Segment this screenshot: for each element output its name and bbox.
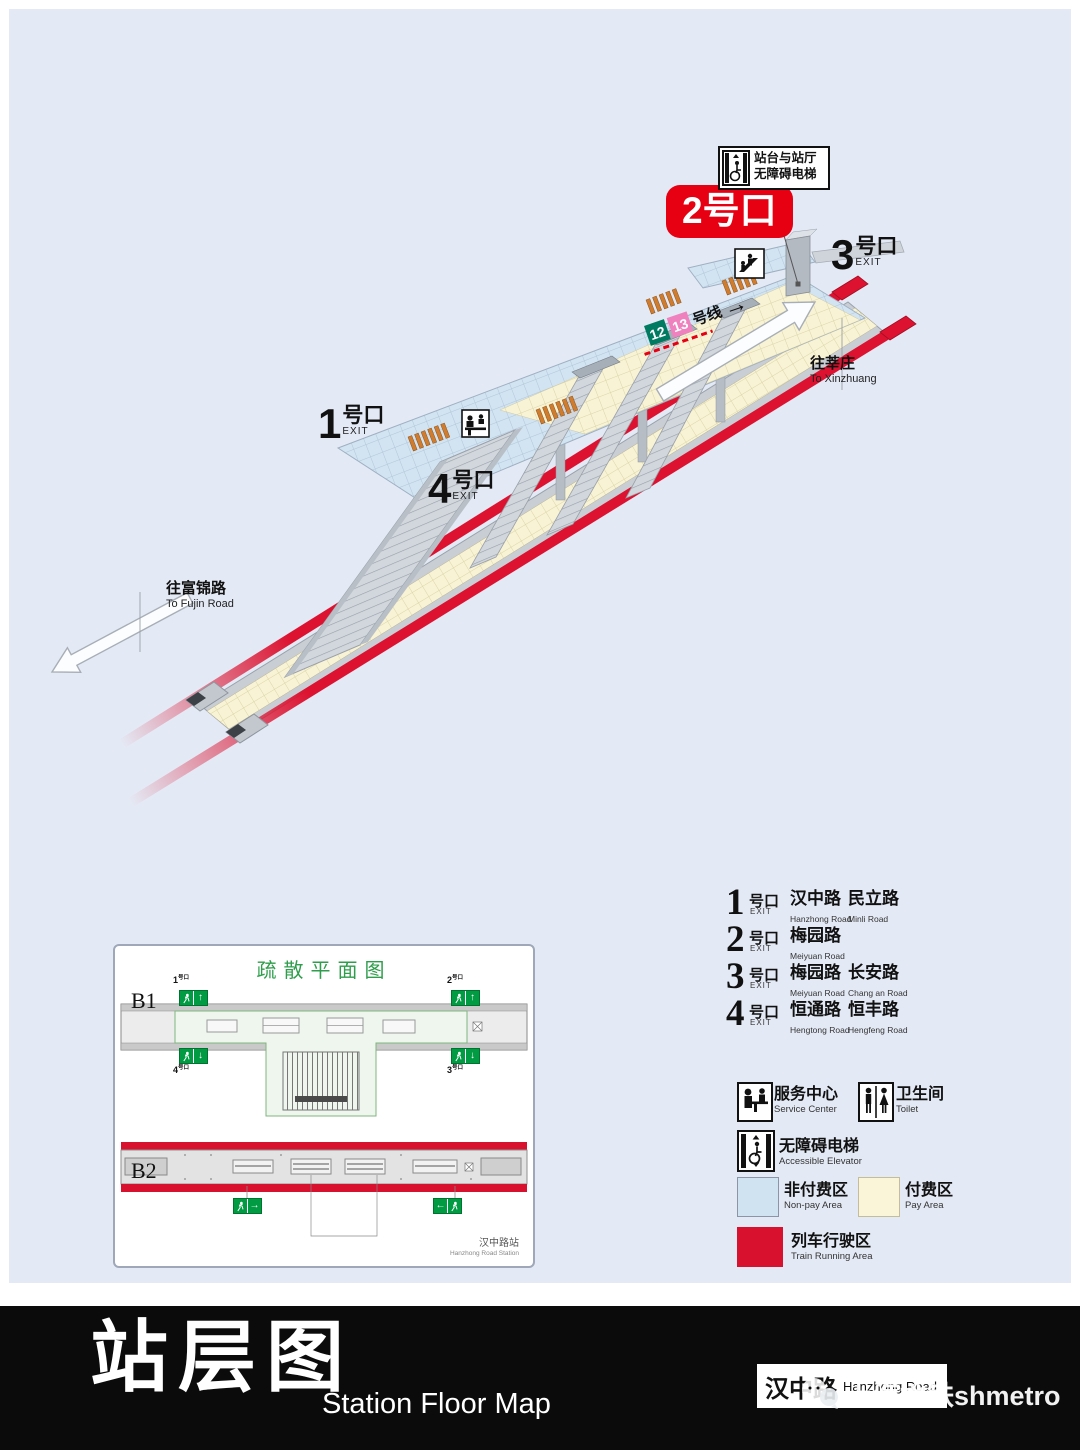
down-arrow-icon: ↓ (465, 1049, 479, 1063)
down-arrow-icon: ↓ (193, 1049, 207, 1063)
line-transfer-sign: 12 13 号线 → (644, 326, 749, 356)
shmetro-watermark: 上海地铁shmetro (798, 1374, 1061, 1413)
up-arrow-icon: ↑ (193, 991, 207, 1005)
to-xinzhuang-label: 往莘庄 To Xinzhuang (810, 355, 877, 385)
evac-exit-4-sign: ↓ (179, 1048, 208, 1064)
map-canvas: 1 号口 EXIT 4 号口 EXIT 3 号口 EXIT 2号口 (0, 0, 1080, 1292)
up-arrow-icon: ↑ (465, 991, 479, 1005)
map-exit-2-badge: 2号口 (666, 185, 793, 238)
exit-list: 1 号口 EXIT 汉中路Hanzhong Road 民立路Minli Road… (726, 890, 986, 1050)
evac-exit-4-label: 4号口 (173, 1066, 189, 1075)
footer-title-en: Station Floor Map (322, 1388, 551, 1421)
map-exit-4-label: 4 号口 EXIT (428, 470, 494, 508)
evac-exit-1-sign: ↑ (179, 990, 208, 1006)
evac-b2-exit-sign-right: ← (433, 1198, 462, 1214)
evacuation-plan-box: 疏散平面图 (113, 944, 535, 1268)
accessible-elevator-legend-icon (737, 1130, 775, 1172)
accessible-elevator-icon (722, 150, 750, 186)
exit-list-row-4: 4 号口 EXIT 恒通路Hengtong Road 恒丰路Hengfeng R… (726, 1001, 1066, 1038)
isometric-station-map (0, 0, 1080, 900)
legend-accessible-elevator: 无障碍电梯 Accessible Elevator (779, 1138, 862, 1167)
exit-list-row-2: 2 号口 EXIT 梅园路Meiyuan Road (726, 927, 1066, 964)
footer-title-zh: 站层图 (90, 1318, 354, 1396)
running-man-icon (180, 991, 193, 1005)
level-b2-label: B2 (131, 1158, 157, 1184)
legend-pay-area: 付费区 Pay Area (905, 1182, 953, 1211)
running-man-icon (180, 1049, 193, 1063)
to-fujin-road-label: 往富锦路 To Fujin Road (166, 580, 234, 610)
legend-non-pay-area: 非付费区 Non-pay Area (784, 1182, 848, 1211)
exit-list-row-1: 1 号口 EXIT 汉中路Hanzhong Road 民立路Minli Road (726, 890, 1066, 927)
evac-exit-3-label: 3号口 (447, 1066, 463, 1075)
level-b1-label: B1 (131, 988, 157, 1014)
chat-bubbles-icon (798, 1376, 842, 1412)
legend-train-running-area: 列车行驶区 Train Running Area (791, 1233, 873, 1262)
evac-exit-2-label: 2号口 (447, 976, 463, 985)
platform-level (200, 302, 884, 735)
accessible-elevator-callout-text: 站台与站厅 无障碍电梯 (754, 150, 817, 186)
escalator-map-icon (735, 249, 764, 278)
legend-toilet: 卫生间 Toilet (896, 1086, 944, 1115)
evac-exit-1-label: 1号口 (173, 976, 189, 985)
left-arrow-icon: ← (434, 1199, 447, 1213)
right-arrow-icon: → (247, 1199, 261, 1213)
station-floor-map-poster: 1 号口 EXIT 4 号口 EXIT 3 号口 EXIT 2号口 (0, 0, 1080, 1450)
pay-area-swatch (858, 1177, 900, 1217)
toilet-icon (858, 1082, 894, 1122)
evac-exit-3-sign: ↓ (451, 1048, 480, 1064)
service-center-icon (737, 1082, 773, 1122)
map-exit-3-label: 3 号口 EXIT (831, 236, 897, 274)
evac-exit-2-sign: ↑ (451, 990, 480, 1006)
running-man-icon (452, 1049, 465, 1063)
legend-service-center: 服务中心 Service Center (774, 1086, 838, 1115)
non-pay-area-swatch (737, 1177, 779, 1217)
evac-station-name: 汉中路站 Hanzhong Road Station (450, 1238, 519, 1258)
evac-b2-exit-sign-left: → (233, 1198, 262, 1214)
exit-list-row-3: 3 号口 EXIT 梅园路Meiyuan Road 长安路Chang an Ro… (726, 964, 1066, 1001)
map-exit-1-label: 1 号口 EXIT (318, 405, 384, 443)
running-man-icon (234, 1199, 247, 1213)
service-center-map-icon (462, 410, 489, 437)
running-man-icon (447, 1199, 461, 1213)
train-running-area-swatch (737, 1227, 783, 1267)
accessible-elevator-callout: 站台与站厅 无障碍电梯 (718, 146, 830, 190)
watermark-text: 上海地铁shmetro (846, 1374, 1061, 1413)
running-man-icon (452, 991, 465, 1005)
